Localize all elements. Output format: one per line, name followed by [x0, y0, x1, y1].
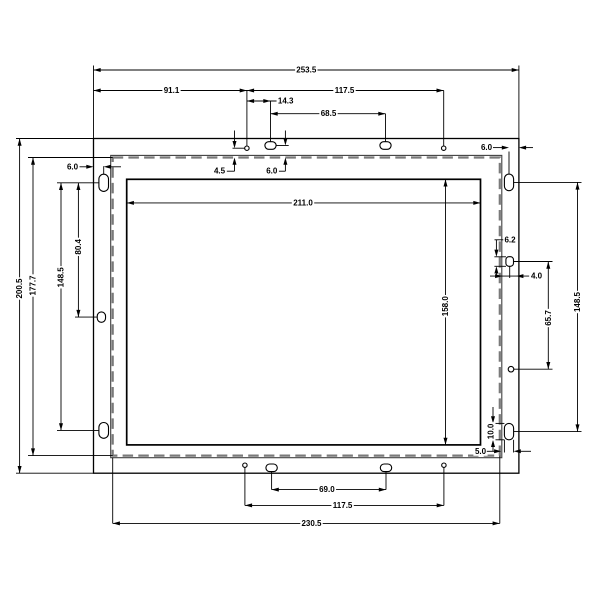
svg-text:6.0: 6.0: [266, 167, 278, 176]
svg-text:65.7: 65.7: [544, 310, 553, 326]
svg-text:253.5: 253.5: [296, 66, 317, 75]
svg-text:230.5: 230.5: [301, 519, 322, 528]
svg-text:148.5: 148.5: [57, 267, 66, 288]
svg-text:117.5: 117.5: [335, 86, 355, 95]
svg-text:69.0: 69.0: [319, 485, 335, 494]
svg-text:177.7: 177.7: [29, 275, 38, 296]
svg-text:5.0: 5.0: [475, 447, 487, 456]
svg-text:158.0: 158.0: [441, 296, 450, 317]
svg-text:6.0: 6.0: [481, 143, 493, 152]
svg-text:211.0: 211.0: [293, 198, 313, 207]
svg-text:10.0: 10.0: [487, 423, 496, 439]
svg-text:91.1: 91.1: [164, 86, 180, 95]
svg-text:200.5: 200.5: [15, 278, 24, 299]
svg-text:68.5: 68.5: [321, 109, 337, 118]
svg-text:148.5: 148.5: [573, 291, 582, 312]
svg-text:80.4: 80.4: [74, 238, 83, 254]
svg-text:6.2: 6.2: [504, 235, 516, 244]
svg-text:6.0: 6.0: [67, 162, 79, 171]
svg-text:4.5: 4.5: [214, 167, 226, 176]
svg-text:117.5: 117.5: [333, 501, 353, 510]
svg-text:14.3: 14.3: [278, 97, 294, 106]
svg-text:4.0: 4.0: [531, 272, 543, 281]
